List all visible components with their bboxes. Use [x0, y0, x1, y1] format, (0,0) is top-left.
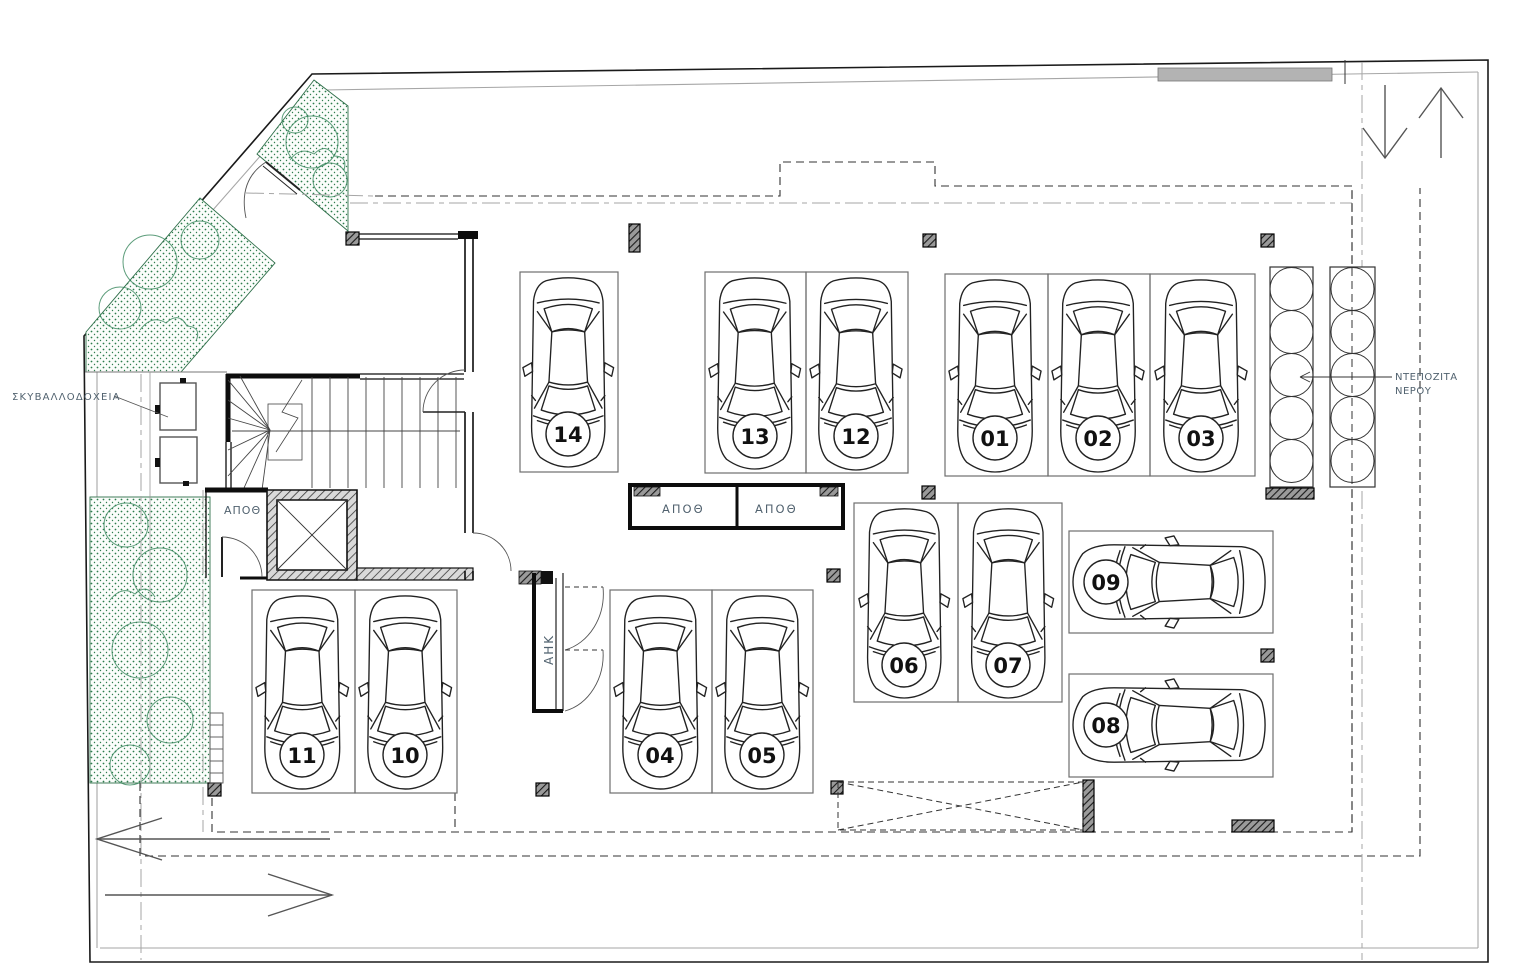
spot-number: 08 — [1091, 714, 1120, 738]
door-swing — [423, 370, 465, 412]
storage-room-left-label: ΑΠΟΘ — [224, 504, 261, 517]
parking-spot-14: 14 — [520, 272, 618, 472]
parking-spot-08: 08 — [1069, 674, 1273, 777]
parking-spot-09: 09 — [1069, 531, 1273, 633]
water-tanks: ΝΤΕΠΟΖΙΤΑ ΝΕΡΟΥ — [1270, 190, 1458, 832]
spot-number: 14 — [553, 423, 582, 447]
bin-hinge — [180, 378, 186, 383]
spot-number: 07 — [993, 654, 1022, 678]
ramp-down-arrow-icon — [1363, 85, 1407, 158]
door-swing — [565, 650, 603, 711]
spot-number: 05 — [747, 744, 776, 768]
floor-plan-canvas: ΣΚΥΒΑΛΛΟΔΟΧΕΙΑ — [0, 0, 1529, 980]
exit-arrow-icon — [97, 818, 330, 860]
storage-room-center-right-label: ΑΠΟΘ — [755, 502, 798, 516]
parking-spot-06: 06 — [854, 503, 958, 702]
edge-steps — [210, 713, 223, 783]
stair-direction-line — [276, 380, 302, 452]
core-wall-and-doors — [352, 231, 511, 580]
floor-plan-svg: ΣΚΥΒΑΛΛΟΔΟΧΕΙΑ — [0, 0, 1529, 980]
bin-hinge — [155, 458, 160, 467]
ramp-up-arrow-icon — [1419, 88, 1463, 158]
storage-room-left: ΑΠΟΘ — [205, 490, 268, 578]
storage-rooms-center: ΑΠΟΘ ΑΠΟΘ — [630, 485, 843, 528]
trash-bins: ΣΚΥΒΑΛΛΟΔΟΧΕΙΑ — [12, 378, 197, 486]
parking-spot-10: 10 — [355, 590, 457, 793]
bin-hinge — [183, 481, 189, 486]
parking-spot-13: 13 — [705, 272, 806, 473]
spot-number: 03 — [1186, 427, 1215, 451]
ramp-cross-zone — [838, 782, 1083, 830]
spot-number: 11 — [287, 744, 316, 768]
parking-spot-12: 12 — [806, 272, 908, 473]
water-tanks-label-2: ΝΕΡΟΥ — [1395, 386, 1432, 397]
parking-spot-11: 11 — [252, 590, 355, 793]
spot-number: 10 — [390, 744, 419, 768]
parking-spot-01: 01 — [945, 274, 1048, 476]
parking-spot-03: 03 — [1150, 274, 1255, 476]
spot-number: 13 — [740, 425, 769, 449]
spot-number: 06 — [889, 654, 918, 678]
spot-number: 02 — [1083, 427, 1112, 451]
spot-number: 09 — [1091, 571, 1120, 595]
door-swing — [565, 587, 603, 650]
spot-number: 04 — [645, 744, 674, 768]
spot-number: 01 — [980, 427, 1009, 451]
water-tanks-label-1: ΝΤΕΠΟΖΙΤΑ — [1395, 372, 1458, 383]
parking-spot-02: 02 — [1048, 274, 1150, 476]
parking-spot-04: 04 — [610, 590, 712, 793]
spot-number: 12 — [841, 425, 870, 449]
planting-area-upper — [257, 80, 348, 231]
parking-spot-05: 05 — [712, 590, 813, 793]
elevator-shaft — [267, 490, 473, 580]
entry-arrow-icon — [105, 874, 332, 916]
electrical-room: ΑΗΚ — [519, 571, 603, 713]
door-swing — [222, 537, 262, 577]
trash-bins-label: ΣΚΥΒΑΛΛΟΔΟΧΕΙΑ — [12, 392, 121, 403]
door-swing — [473, 533, 511, 571]
planting-area-middle — [86, 198, 275, 372]
storage-room-center-left-label: ΑΠΟΘ — [662, 502, 705, 516]
parking-spot-07: 07 — [958, 503, 1062, 702]
electrical-room-label: ΑΗΚ — [542, 634, 556, 665]
